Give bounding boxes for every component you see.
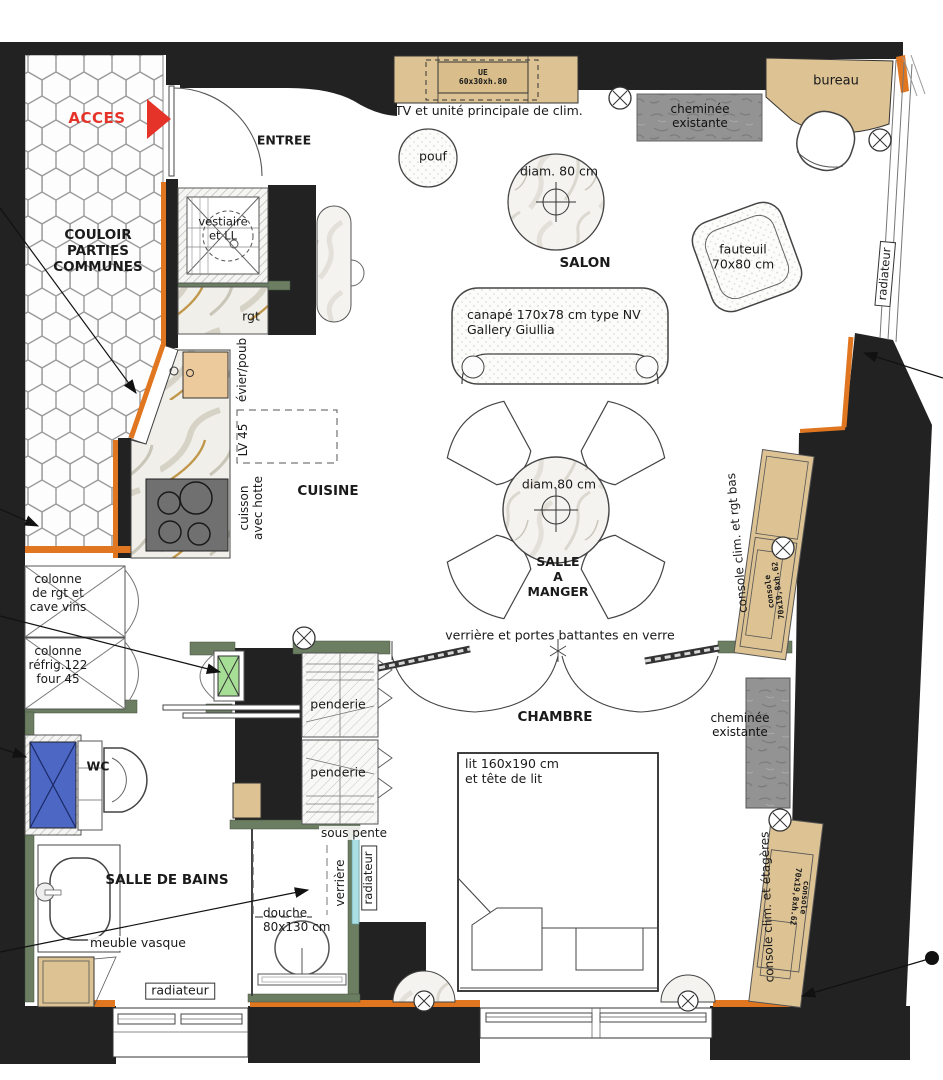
coffee-table-label: diam. 80 cm [520,165,598,180]
bathroom-name: SALLE DE BAINS [105,873,228,889]
sink [183,352,228,398]
fireplace-bedroom [746,678,790,808]
ac-unit-label: UE 60x30xh.80 [459,68,507,86]
dining-table-label: diam.80 cm [522,478,596,493]
column2-label: colonne réfrig.122 four 45 [29,644,88,686]
bath-window [113,1008,248,1057]
sloped-ceiling-label: sous pente [319,826,389,840]
bedroom-name: CHAMBRE [518,710,593,726]
fireplace-salon-label: cheminée existante [671,102,730,130]
bed [458,753,658,991]
armchair-label: fauteuil 70x80 cm [712,242,774,272]
glazing-strip [352,836,359,924]
dishwasher-outline [237,410,337,463]
bed-label: lit 160x190 cm et tête de lit [465,757,559,787]
rgt-label: rgt [242,310,260,325]
sofa-label: canapé 170x78 cm type NV Gallery Giullia [467,308,641,338]
hob-label: cuisson avec hotte [237,476,265,540]
shower-label: douche 80x130 cm [263,906,330,934]
sink-label: évier/poub [235,338,249,402]
column1-label: colonne de rgt et cave vins [30,572,87,614]
wc-unit [25,735,147,835]
vestiaire-label: vestiaire et LL [198,215,247,242]
shower-radiator-label: radiateur [361,846,377,911]
salon-name: SALON [559,256,610,272]
wc-name: WC [87,760,110,775]
dining-name: SALLE A MANGER [528,555,589,599]
corridor-name: COULOIR PARTIES COMMUNES [53,228,142,276]
bath-cabinet [38,957,116,1007]
desk-label: bureau [813,73,859,88]
tv-label: TV et unité principale de clim. [395,104,583,119]
kitchen-name: CUISINE [297,484,358,500]
fridge-unit [200,651,244,701]
shower-glazing-label: verrière [333,860,347,907]
structural-column [317,206,364,322]
stove [146,479,228,551]
vanity-label: meuble vasque [88,936,188,951]
fireplace-bedroom-label: cheminée existante [711,711,770,739]
bedroom-window [480,1008,712,1038]
pillow [472,908,542,970]
wardrobe-bottom-label: penderie [310,766,365,781]
pouf-label: pouf [419,150,447,165]
toilet [104,748,147,812]
pillow [576,928,643,970]
floor-plan: ACCES COULOIR PARTIES COMMUNES ENTREE ve… [0,0,943,1080]
wardrobe-top-label: penderie [310,698,365,713]
entry-door [164,85,262,179]
dishwasher-label: LV 45 [236,424,250,457]
entry-name: ENTREE [257,134,311,149]
access-label: ACCES [68,110,125,128]
glazing-label: verrière et portes battantes en verre [445,629,674,644]
glass-doors [340,639,719,712]
dining-table [503,457,609,563]
bath-radiator-label: radiateur [145,983,215,1000]
